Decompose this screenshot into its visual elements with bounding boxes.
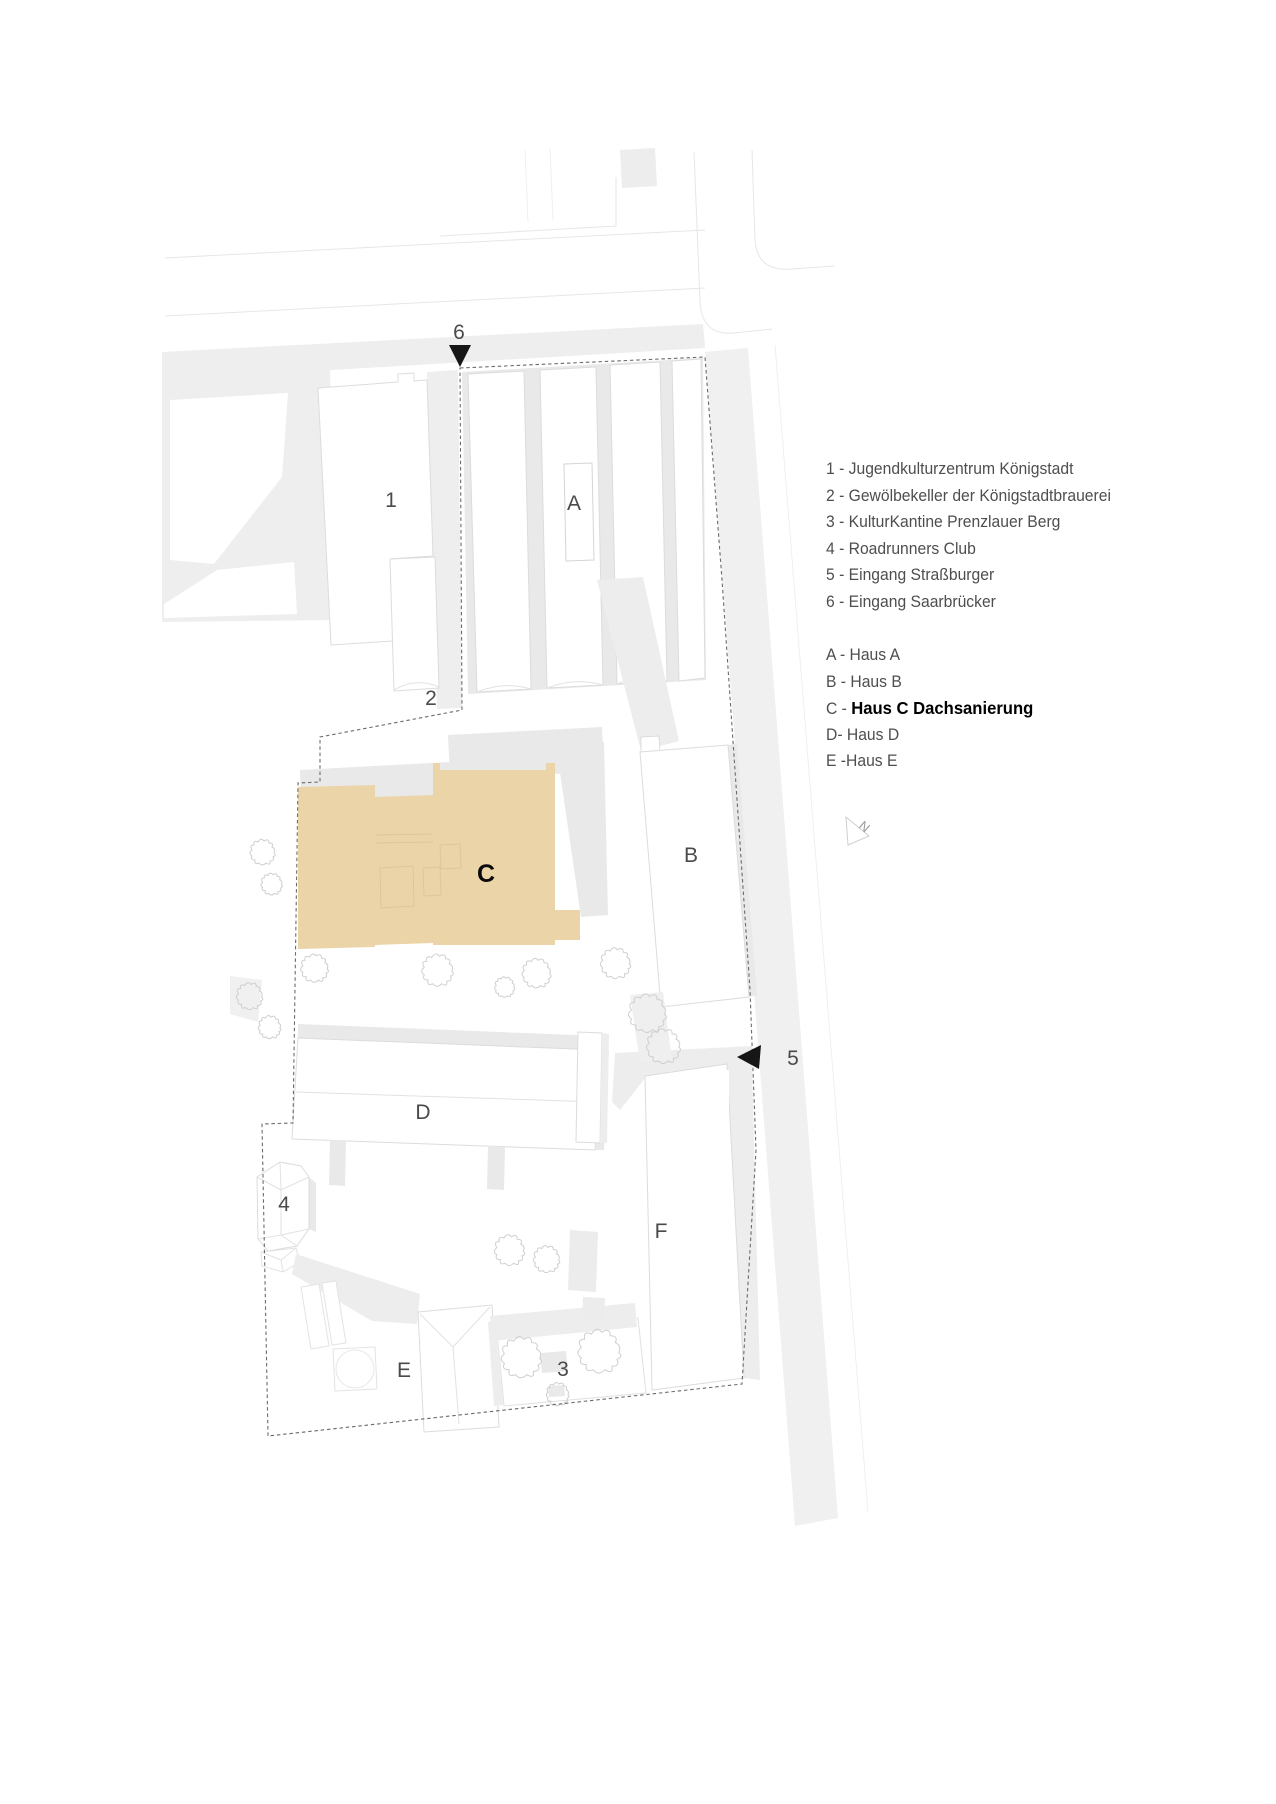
label-building-e: E bbox=[397, 1359, 411, 1382]
building-1 bbox=[318, 373, 439, 691]
legend-highlight-prefix: C - bbox=[826, 700, 851, 718]
label-building-3: 3 bbox=[557, 1358, 569, 1381]
north-arrow: N bbox=[846, 817, 873, 845]
building-d-wing bbox=[576, 1032, 609, 1143]
legend-item: E -Haus E bbox=[826, 748, 1033, 775]
legend-item: 6 - Eingang Saarbrücker bbox=[826, 589, 1111, 616]
legend-item: B - Haus B bbox=[826, 669, 1033, 696]
label-building-4: 4 bbox=[278, 1193, 290, 1216]
legend-item: D- Haus D bbox=[826, 722, 1033, 749]
legend-lettered: A - Haus A B - Haus B C - Haus C Dachsan… bbox=[826, 642, 1033, 775]
label-building-1: 1 bbox=[385, 489, 397, 512]
building-4 bbox=[257, 1162, 316, 1272]
label-building-a: A bbox=[567, 492, 581, 515]
label-building-f: F bbox=[655, 1220, 668, 1243]
building-b bbox=[640, 736, 757, 1007]
building-d bbox=[292, 1024, 609, 1190]
label-building-2: 2 bbox=[425, 687, 437, 710]
label-building-b: B bbox=[684, 844, 698, 867]
label-building-d: D bbox=[415, 1101, 430, 1124]
legend-item: 4 - Roadrunners Club bbox=[826, 536, 1111, 563]
courtyard-slabs bbox=[568, 1230, 605, 1320]
legend-item: 3 - KulturKantine Prenzlauer Berg bbox=[826, 509, 1111, 536]
legend-item: A - Haus A bbox=[826, 642, 1033, 669]
legend-highlight-label: Haus C Dachsanierung bbox=[851, 698, 1033, 718]
label-building-c: C bbox=[477, 860, 495, 888]
building-c-highlight bbox=[298, 763, 580, 949]
building-a-complex bbox=[462, 358, 706, 694]
legend-item: 1 - Jugendkulturzentrum Königstadt bbox=[826, 456, 1111, 483]
site-plan-canvas: N 1 A 2 B C D F 4 E 3 5 6 bbox=[0, 0, 1276, 1804]
label-entrance-6: 6 bbox=[453, 321, 465, 344]
legend-numbered: 1 - Jugendkulturzentrum Königstadt 2 - G… bbox=[826, 456, 1111, 616]
legend-item-highlight: C - Haus C Dachsanierung bbox=[826, 695, 1033, 722]
legend-item: 5 - Eingang Straßburger bbox=[826, 562, 1111, 589]
label-entrance-5: 5 bbox=[787, 1047, 799, 1070]
legend-item: 2 - Gewölbekeller der Königstadtbrauerei bbox=[826, 483, 1111, 510]
